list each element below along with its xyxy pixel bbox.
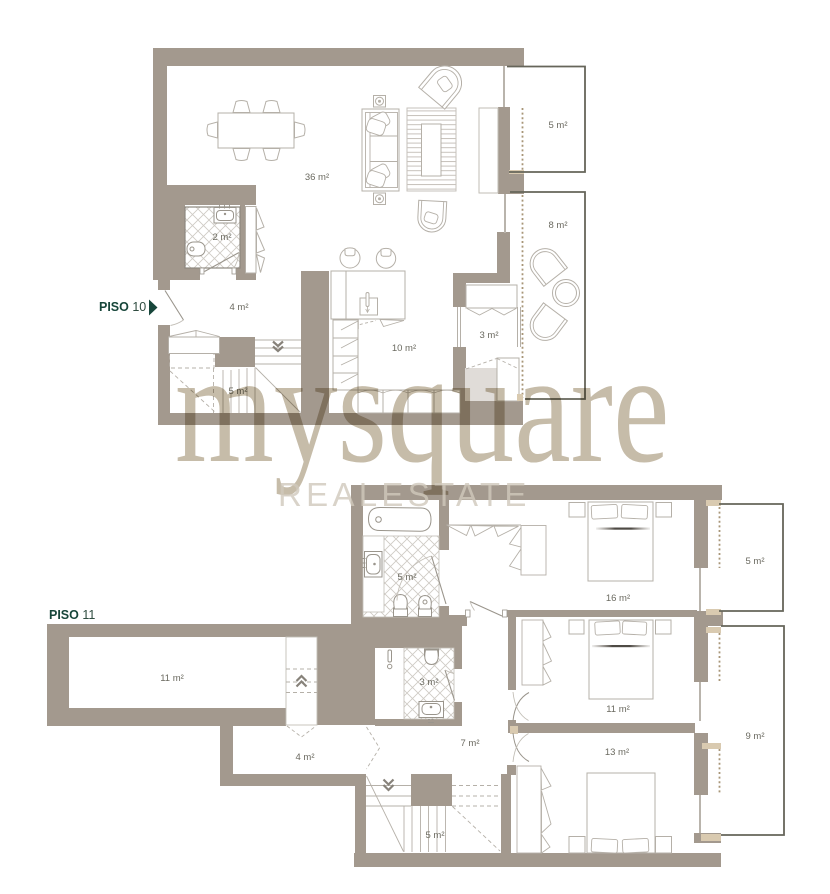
svg-text:8 m²: 8 m² (549, 220, 568, 231)
svg-text:5 m²: 5 m² (398, 572, 417, 583)
svg-text:3 m²: 3 m² (420, 677, 439, 688)
svg-text:PISO 11: PISO 11 (49, 608, 95, 622)
svg-text:mysquare: mysquare (175, 321, 669, 497)
svg-text:2 m²: 2 m² (213, 232, 232, 243)
svg-text:PISO 10: PISO 10 (99, 300, 146, 314)
svg-text:4 m²: 4 m² (296, 752, 315, 763)
svg-text:11 m²: 11 m² (160, 673, 184, 684)
svg-text:5 m²: 5 m² (426, 830, 445, 841)
svg-text:13 m²: 13 m² (605, 747, 629, 758)
svg-text:16 m²: 16 m² (606, 593, 630, 604)
svg-text:REALESTATE: REALESTATE (278, 476, 531, 513)
svg-text:5 m²: 5 m² (746, 556, 765, 567)
svg-text:7 m²: 7 m² (461, 738, 480, 749)
svg-text:11 m²: 11 m² (606, 704, 630, 715)
svg-text:9 m²: 9 m² (746, 731, 765, 742)
svg-text:4 m²: 4 m² (230, 302, 249, 313)
svg-text:36 m²: 36 m² (305, 172, 329, 183)
svg-text:5 m²: 5 m² (549, 120, 568, 131)
